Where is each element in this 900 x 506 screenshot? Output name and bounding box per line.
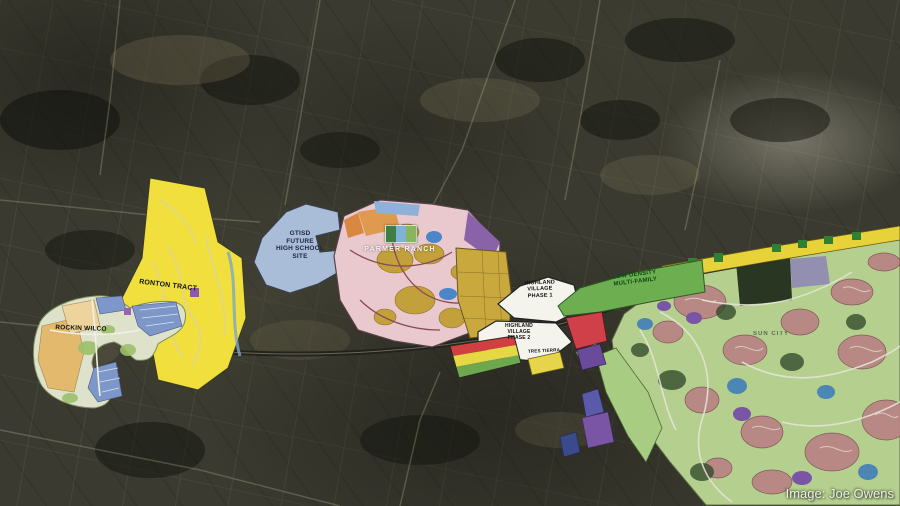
aerial-map: RONTON TRACT ROCKIN WILCO GTISD FUTURE H… xyxy=(0,0,900,506)
parmer-ranch-logo xyxy=(385,225,417,243)
gtisd-school-site-parcel xyxy=(254,204,346,293)
red-parcel xyxy=(566,312,607,349)
image-credit: Image: Joe Owens xyxy=(786,486,894,501)
map-canvas xyxy=(0,0,900,506)
